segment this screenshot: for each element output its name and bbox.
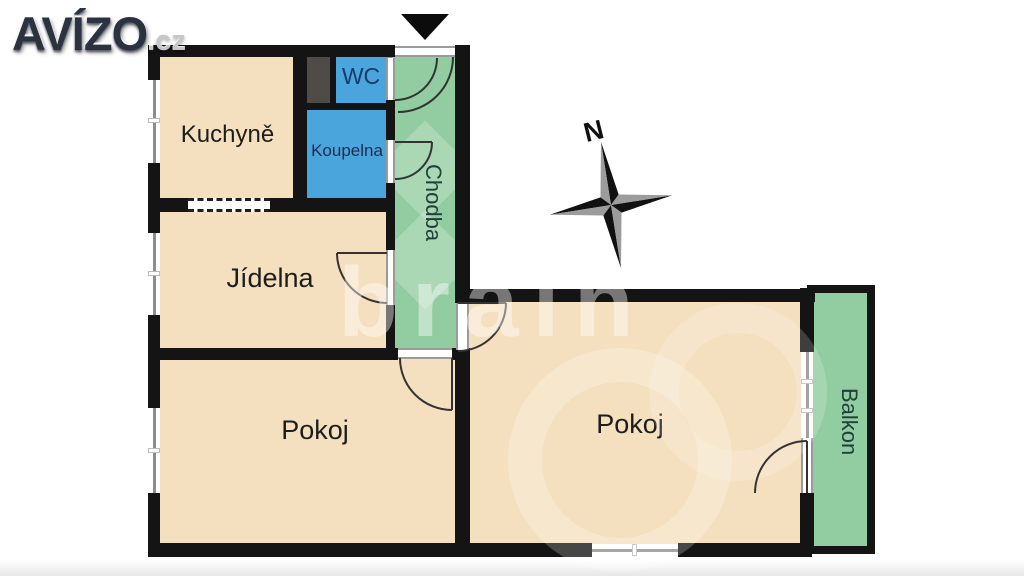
avizo-logo: AVÍZO.cz — [12, 6, 186, 61]
floorplan-canvas: N Kuchyně WC Koupelna Chodba Jídelna Pok… — [0, 0, 1024, 576]
watermark-text: brain — [338, 246, 648, 359]
logo-brand-text: AVÍZO — [12, 7, 147, 60]
logo-suffix-text: .cz — [147, 25, 186, 57]
entrance-marker-icon — [401, 14, 449, 40]
